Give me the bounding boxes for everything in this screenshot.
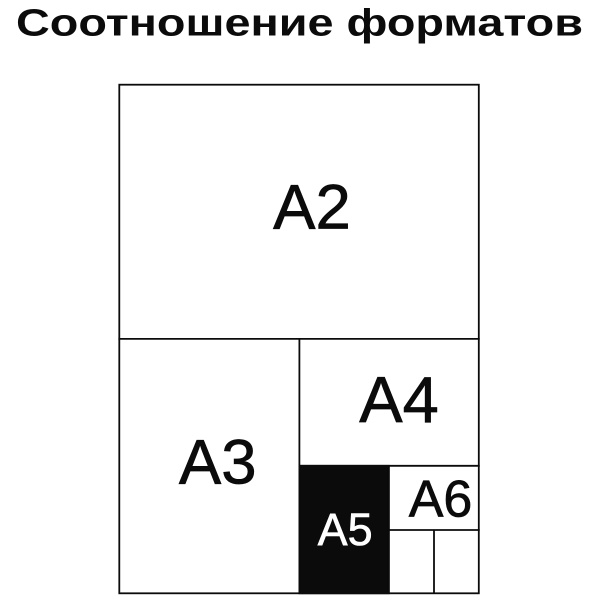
svg-text:A4: A4 <box>359 363 439 436</box>
svg-text:A6: A6 <box>409 470 473 528</box>
svg-text:A3: A3 <box>179 428 257 498</box>
svg-text:Соотношение форматов: Соотношение форматов <box>16 2 583 44</box>
svg-text:A2: A2 <box>273 173 351 243</box>
svg-text:A5: A5 <box>318 504 373 555</box>
